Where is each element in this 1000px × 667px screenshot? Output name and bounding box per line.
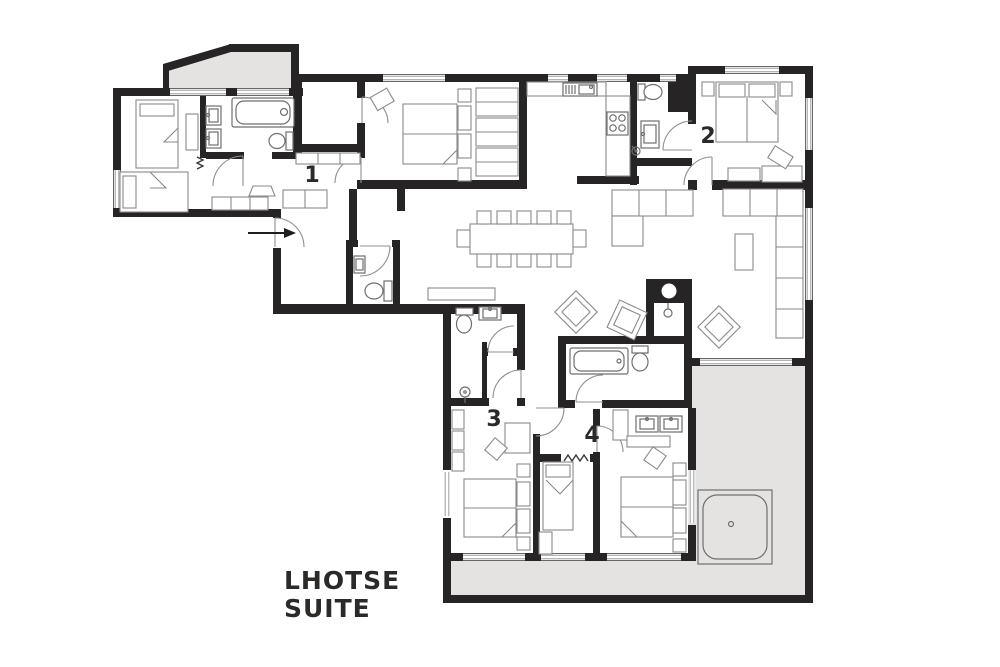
window <box>463 554 525 561</box>
room-label-3: 3 <box>486 407 501 432</box>
furniture-bathroom-topleft <box>206 98 294 150</box>
nightstand <box>517 537 530 550</box>
sofa <box>612 190 693 246</box>
furniture-kitchen <box>527 82 630 176</box>
double-bed <box>621 477 686 537</box>
door <box>488 326 514 357</box>
window <box>725 67 779 74</box>
floor-plan-svg: 1 2 3 4 LHOTSE SUITE <box>0 0 1000 667</box>
kitchen-sink <box>563 83 597 96</box>
door <box>213 156 243 186</box>
basket <box>249 186 275 196</box>
furniture-dining <box>428 211 586 300</box>
bench <box>212 197 268 210</box>
sideboard <box>428 288 495 300</box>
door <box>536 408 564 436</box>
window <box>660 75 676 82</box>
window <box>607 554 681 561</box>
door <box>663 121 697 156</box>
bathtub <box>570 348 628 374</box>
window <box>444 472 451 516</box>
closet <box>539 532 552 554</box>
wardrobe <box>476 88 518 176</box>
window <box>689 470 696 523</box>
nightstand <box>517 464 530 477</box>
toilet <box>365 281 392 301</box>
bench <box>728 168 760 181</box>
window <box>170 89 226 96</box>
fireplace <box>646 279 692 344</box>
window <box>114 170 121 208</box>
sink <box>479 307 501 320</box>
double-bed <box>464 479 530 537</box>
room-label-2: 2 <box>700 124 715 149</box>
furniture-single-room <box>539 462 573 554</box>
window <box>806 98 813 150</box>
room-label-4: 4 <box>584 423 599 448</box>
cabinet <box>186 114 198 150</box>
window <box>383 75 445 82</box>
plan-title: LHOTSE SUITE <box>284 566 400 623</box>
sink <box>206 129 221 148</box>
folding-door-symbol <box>564 455 588 461</box>
toilet <box>456 308 473 333</box>
armchair <box>607 300 647 340</box>
armchair <box>698 306 740 348</box>
nightstand <box>673 463 686 476</box>
sink <box>641 121 659 148</box>
bench <box>762 166 802 182</box>
door <box>493 370 526 398</box>
sink <box>354 256 365 273</box>
toilet <box>632 346 648 371</box>
furniture-living-room <box>555 189 803 348</box>
chair <box>370 88 394 110</box>
stove <box>607 112 628 135</box>
furniture-bedroom-2 <box>702 82 802 182</box>
floor-plan-page: 1 2 3 4 LHOTSE SUITE <box>0 0 1000 667</box>
dining-table <box>470 224 573 254</box>
plan-title-line1: LHOTSE <box>284 566 400 595</box>
counter <box>606 96 630 176</box>
window <box>541 554 585 561</box>
double-bed <box>403 104 471 164</box>
balcony-terrace <box>166 49 295 90</box>
chair <box>485 438 508 461</box>
chair <box>644 447 666 469</box>
wardrobe <box>452 410 464 471</box>
nightstand <box>702 82 714 96</box>
desk <box>505 423 530 453</box>
single-bed <box>136 100 178 168</box>
furniture-wc <box>354 256 392 301</box>
double-bed <box>716 82 778 142</box>
nightstand <box>458 168 471 181</box>
furniture-bedroom-1 <box>296 84 518 181</box>
dressing-room-interior <box>303 84 353 140</box>
desk <box>627 436 670 447</box>
bathtub <box>232 98 294 127</box>
armchair <box>555 291 597 333</box>
room-label-1: 1 <box>304 163 319 188</box>
window <box>806 208 813 300</box>
folding-door-symbol <box>197 157 203 169</box>
wardrobe <box>613 410 628 440</box>
nightstand <box>458 89 471 102</box>
nightstand <box>673 539 686 552</box>
bench <box>283 190 327 208</box>
window <box>597 75 627 82</box>
window <box>237 89 289 96</box>
terrace-slider-window <box>700 359 792 366</box>
window <box>548 75 568 82</box>
plan-title-line2: SUITE <box>284 594 371 623</box>
cushion <box>768 146 793 169</box>
single-bed <box>120 172 188 212</box>
toilet <box>269 132 293 150</box>
single-bed <box>543 462 573 530</box>
coffee-table <box>735 234 753 270</box>
sink <box>206 106 221 125</box>
nightstand <box>780 82 792 96</box>
double-vanity <box>636 416 682 432</box>
door <box>576 375 603 409</box>
toilet <box>638 84 662 100</box>
